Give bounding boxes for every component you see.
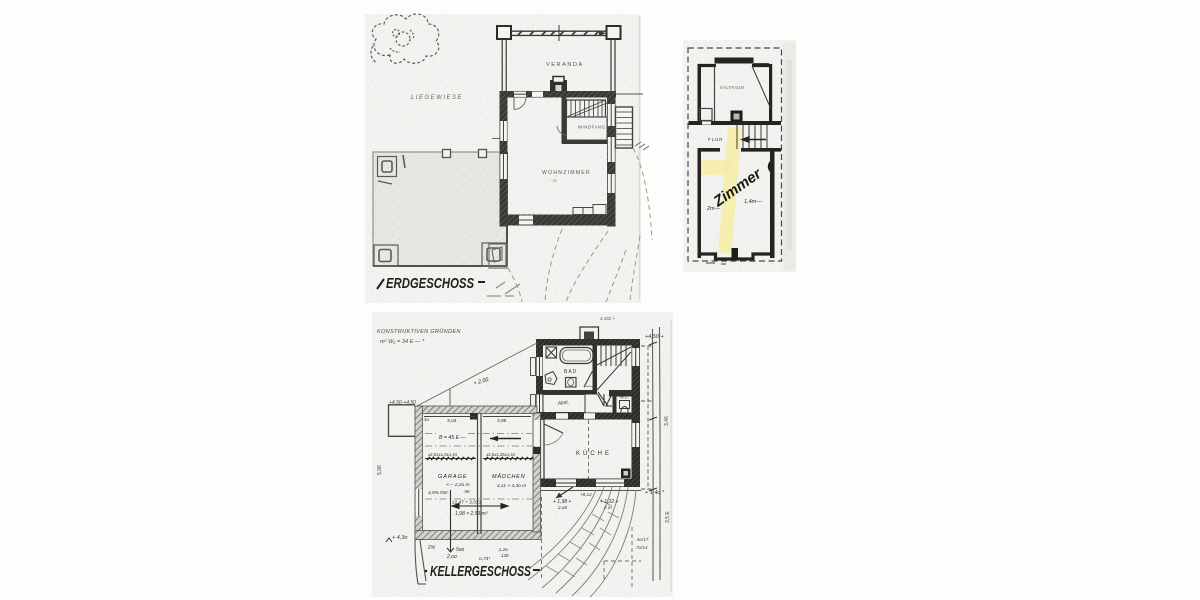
svg-text:BAD: BAD	[564, 369, 577, 375]
svg-text:GARAGE: GARAGE	[438, 474, 468, 480]
svg-text:5oo: 5oo	[456, 547, 465, 553]
svg-text:7o/14: 7o/14	[636, 545, 648, 550]
svg-text:ERDGESCHOSS: ERDGESCHOSS	[386, 275, 474, 292]
svg-text:<— 2,2o m: <— 2,2o m	[446, 482, 470, 488]
svg-text:~ 30: ~ 30	[549, 178, 558, 183]
svg-text:KÜCHE: KÜCHE	[576, 450, 612, 457]
svg-text:VERANDA: VERANDA	[546, 62, 584, 68]
svg-text:4,152 +: 4,152 +	[600, 316, 616, 321]
svg-text:3,5 E: 3,5 E	[665, 511, 671, 523]
svg-text:±2,47 + 2,02±: ±2,47 + 2,02±	[452, 500, 482, 506]
svg-text:+8,12: +8,12	[580, 492, 592, 497]
svg-text:2 m: 2 m	[603, 505, 612, 510]
svg-text:12E: 12E	[501, 553, 509, 558]
svg-text:3o: 3o	[424, 417, 430, 422]
svg-text:B = 45 E —: B = 45 E —	[439, 435, 466, 441]
svg-text:2m—: 2m—	[706, 206, 721, 212]
svg-text:3,99: 3,99	[497, 418, 507, 424]
svg-text:2,o8: 2,o8	[557, 505, 567, 510]
svg-text:4,11 × 4,3o m: 4,11 × 4,3o m	[497, 483, 526, 489]
svg-text:KALTRAUM: KALTRAUM	[720, 85, 744, 90]
svg-text:· 4o/17: · 4o/17	[634, 537, 649, 542]
svg-text:+4,50·+4,50: +4,50·+4,50	[389, 400, 416, 406]
svg-text:5,98: 5,98	[377, 465, 383, 475]
svg-text:+ 1,4o *: + 1,4o *	[645, 490, 665, 496]
svg-text:3,o3: 3,o3	[447, 418, 457, 424]
svg-text:KELLERGESCHOSS: KELLERGESCHOSS	[430, 564, 531, 580]
svg-text:2%: 2%	[427, 545, 436, 551]
svg-text:2,oo: 2,oo	[446, 554, 457, 560]
svg-text:95E·: 95E·	[440, 490, 449, 495]
svg-text:±2,6±1,25±1,44: ±2,6±1,25±1,44	[486, 452, 516, 457]
svg-text:W.C.: W.C.	[620, 395, 629, 400]
svg-text:±2,51±1,0±1,44: ±2,51±1,0±1,44	[428, 452, 458, 457]
svg-text:+4,50 +: +4,50 +	[645, 334, 664, 340]
svg-text:MÄDCHEN: MÄDCHEN	[492, 473, 525, 480]
svg-text:4,5%: 4,5%	[428, 490, 440, 496]
svg-text:+ 4,3o: + 4,3o	[392, 535, 407, 541]
svg-text:3,46: 3,46	[664, 416, 670, 426]
svg-text:KONSTRUKTIVEN GRÜNDEN: KONSTRUKTIVEN GRÜNDEN	[377, 328, 461, 335]
svg-text:FLUR: FLUR	[708, 137, 723, 142]
svg-text:WOHNZIMMER: WOHNZIMMER	[542, 170, 591, 176]
svg-text:m² W₂ = 34 E — *: m² W₂ = 34 E — *	[380, 339, 425, 345]
svg-text:·86·: ·86·	[463, 489, 471, 494]
svg-text:o,74*: o,74*	[479, 556, 490, 562]
svg-text:LIEGEWIESE: LIEGEWIESE	[411, 95, 463, 101]
svg-text:WINDFANG: WINDFANG	[578, 125, 605, 130]
svg-text:1,98 × 2,59 m²: 1,98 × 2,59 m²	[455, 511, 488, 517]
svg-text:1,4m—: 1,4m—	[744, 199, 762, 205]
